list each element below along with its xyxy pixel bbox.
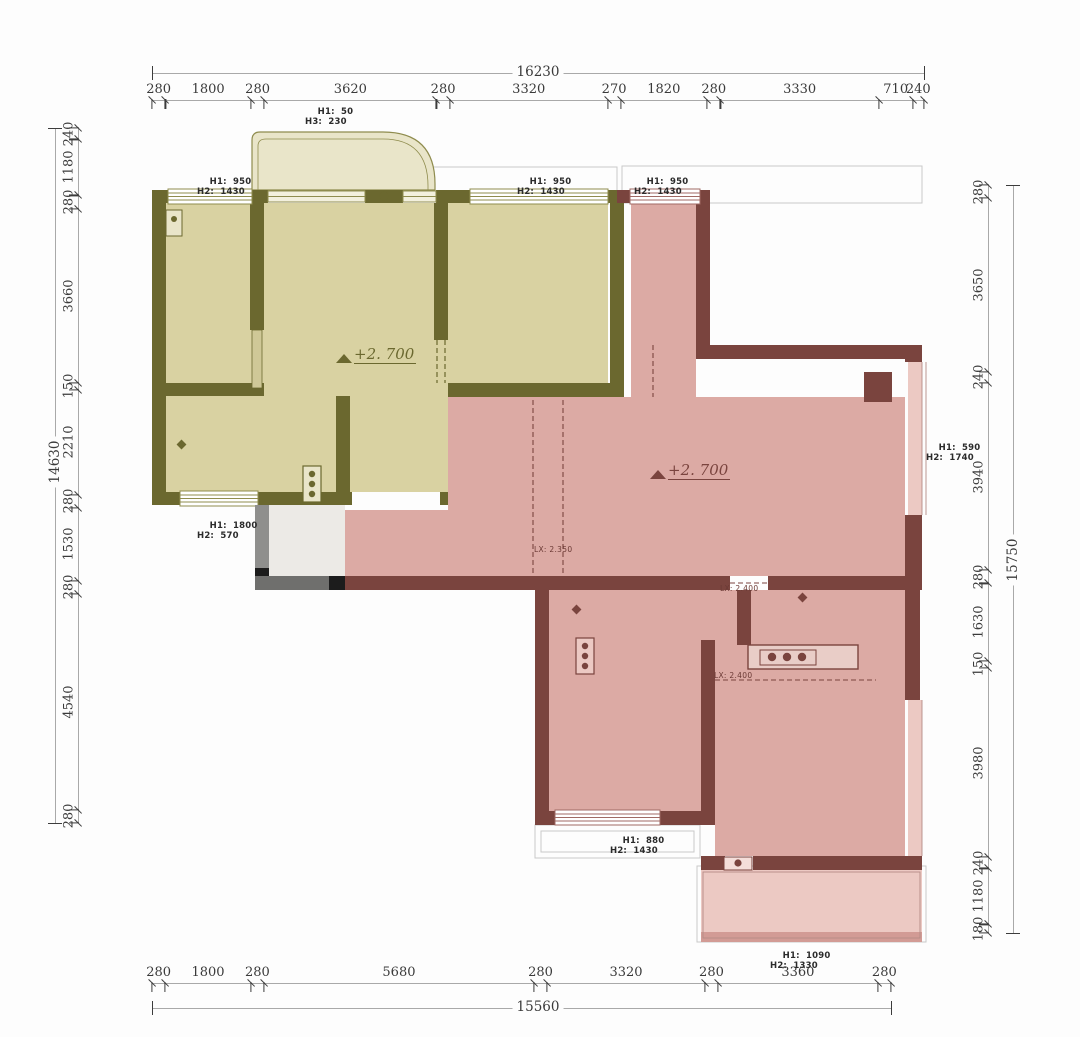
dimension-value: 1180 xyxy=(62,151,77,184)
dimension-value: 1800 xyxy=(191,965,224,980)
dim-end-tick xyxy=(48,823,62,824)
dimension-value: 3330 xyxy=(783,82,816,97)
dimension-value: 710 xyxy=(883,82,908,97)
beam-label-kitchen-door: LX: 2.400 xyxy=(720,584,758,593)
dimension-value: 240 xyxy=(906,82,931,97)
dimension-value: 3320 xyxy=(609,965,642,980)
dim-line-left-segments xyxy=(78,128,79,823)
opening-label-window-2: H1: 950H2: 1430 xyxy=(517,166,571,208)
dimension-value: 1630 xyxy=(972,606,987,639)
dimension-value: 280 xyxy=(245,82,270,97)
dimension-value: 3650 xyxy=(972,268,987,301)
opening-label-window-7: H1: 1090H2: 1330 xyxy=(770,940,830,982)
dimension-value: 1800 xyxy=(192,82,225,97)
dimension-value: 280 xyxy=(528,965,553,980)
dimension-value: 270 xyxy=(602,82,627,97)
dimension-value: 5680 xyxy=(382,965,415,980)
dim-line-top-segments xyxy=(152,100,924,101)
dimension-value: 2210 xyxy=(62,426,77,459)
dim-total-right: 15750 xyxy=(1005,535,1021,586)
dimension-value: 1820 xyxy=(647,82,680,97)
dim-end-tick xyxy=(1006,933,1020,934)
elevation-triangle-icon xyxy=(336,354,352,363)
elevation-marker-olive: +2. 700 xyxy=(336,345,416,364)
floor-plan-canvas: 16230 15560 14630 15750 2801800280362028… xyxy=(0,0,1080,1037)
elevation-marker-pink: +2. 700 xyxy=(650,461,730,480)
opening-label-balcony: H1: 50H3: 230 xyxy=(305,96,353,138)
dim-end-tick xyxy=(152,1001,153,1015)
dimension-value: 1180 xyxy=(972,880,987,913)
dim-end-tick xyxy=(1006,185,1020,186)
dimension-value: 4540 xyxy=(62,685,77,718)
dimension-value: 3320 xyxy=(512,82,545,97)
dim-total-bottom: 15560 xyxy=(513,999,564,1015)
dimension-value: 280 xyxy=(699,965,724,980)
beam-label-bedroom: LX: 2.400 xyxy=(714,671,752,680)
dimension-value: 280 xyxy=(431,82,456,97)
dim-end-tick xyxy=(48,128,62,129)
dimension-value: 1530 xyxy=(62,528,77,561)
opening-label-window-5: H1: 590H2: 1740 xyxy=(926,432,980,474)
opening-label-window-6: H1: 880H2: 1430 xyxy=(610,825,664,867)
dimension-value: 280 xyxy=(62,190,77,215)
dim-total-top: 16230 xyxy=(513,64,564,80)
dim-line-right-segments xyxy=(988,185,989,933)
dimension-value: 280 xyxy=(872,965,897,980)
dimension-value: 280 xyxy=(146,965,171,980)
dimension-value: 3660 xyxy=(62,279,77,312)
dimension-value: 280 xyxy=(245,965,270,980)
dim-end-tick xyxy=(891,1001,892,1015)
elevation-triangle-icon xyxy=(650,470,666,479)
dim-end-tick xyxy=(152,66,153,80)
dim-end-tick xyxy=(924,66,925,80)
floor-plan-drawing xyxy=(0,0,1080,1037)
opening-label-window-3: H1: 950H2: 1430 xyxy=(634,166,688,208)
dimension-value: 3980 xyxy=(972,746,987,779)
opening-label-window-4: H1: 1800H2: 570 xyxy=(197,510,257,552)
dimension-value: 280 xyxy=(146,82,171,97)
dimension-value: 3620 xyxy=(334,82,367,97)
beam-label-corridor: LX: 2.350 xyxy=(534,545,572,554)
dimension-value: 280 xyxy=(701,82,726,97)
entry-room xyxy=(255,505,345,590)
opening-label-window-1: H1: 950H2: 1430 xyxy=(197,166,251,208)
